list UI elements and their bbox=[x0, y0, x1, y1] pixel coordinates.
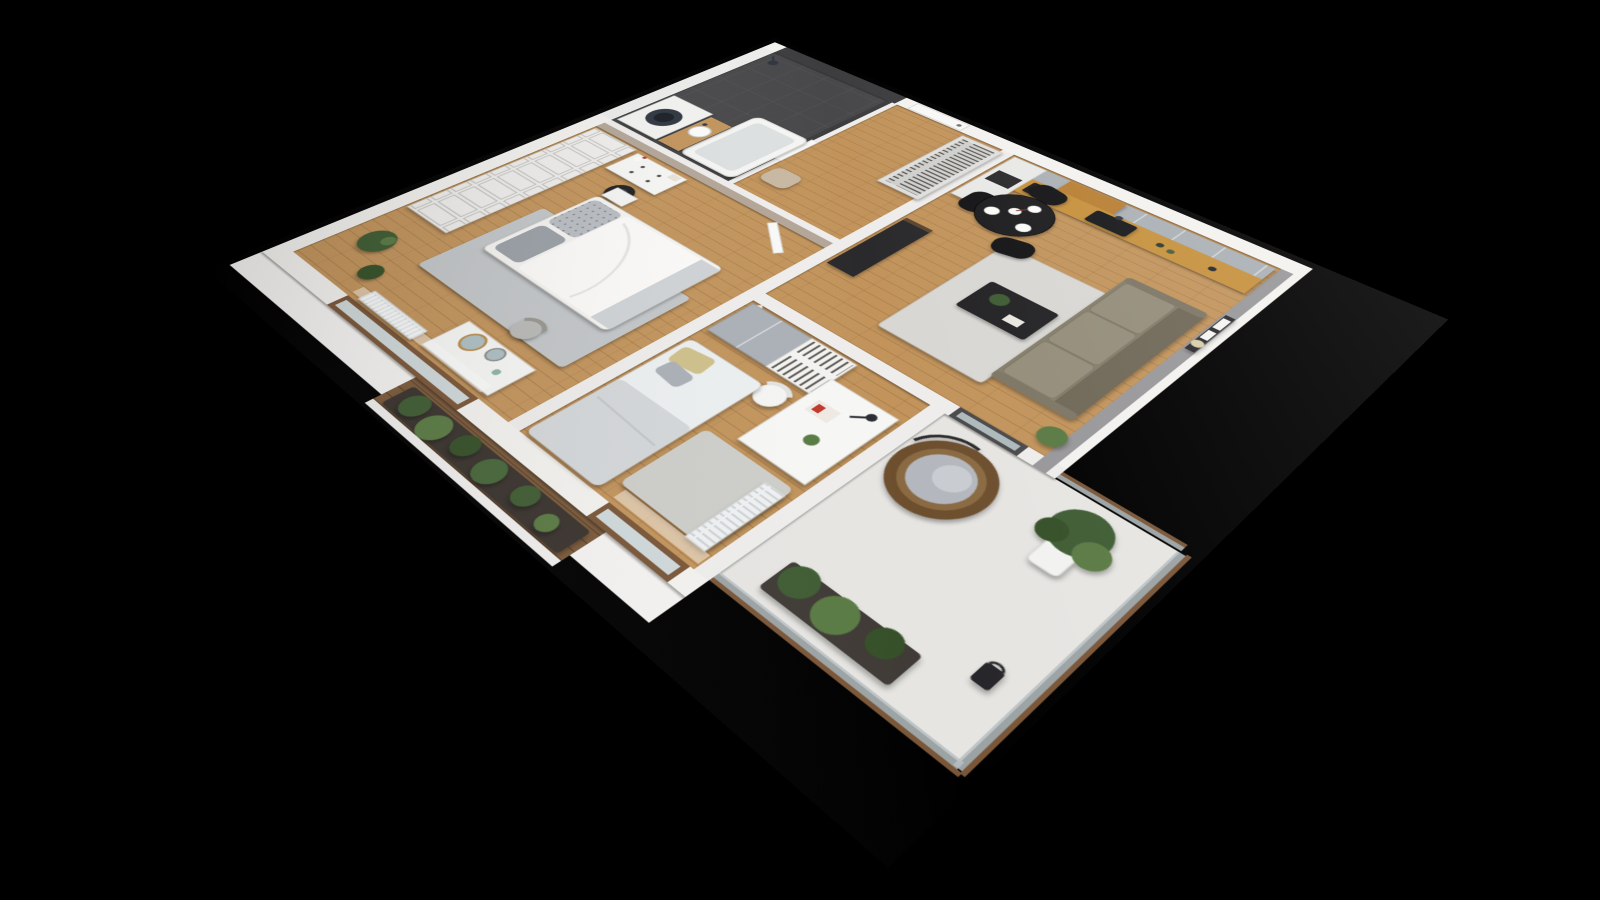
floor-plan bbox=[206, 38, 1449, 868]
render-canvas bbox=[0, 0, 1600, 900]
